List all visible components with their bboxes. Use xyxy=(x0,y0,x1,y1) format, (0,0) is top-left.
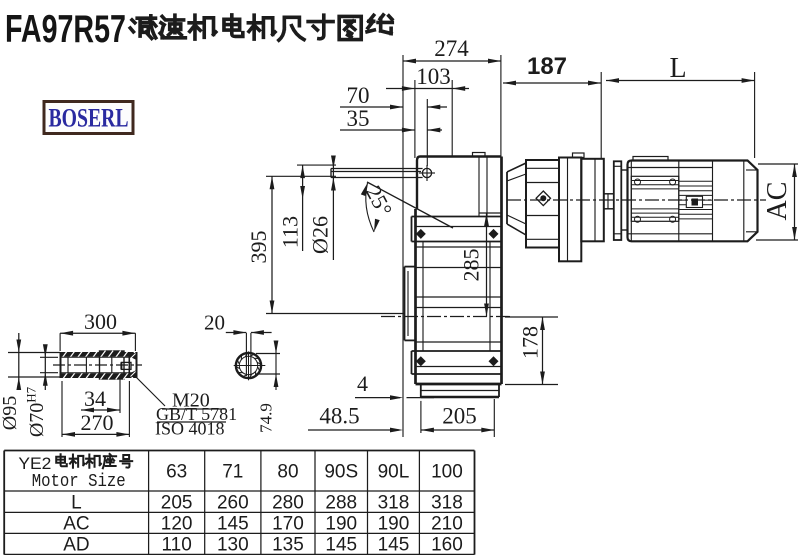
svg-text:274: 274 xyxy=(434,36,469,61)
svg-text:90S: 90S xyxy=(324,462,358,483)
svg-text:4: 4 xyxy=(357,371,368,396)
svg-text:BOSERL: BOSERL xyxy=(49,104,129,133)
svg-text:AC: AC xyxy=(762,182,793,221)
svg-text:Motor Size: Motor Size xyxy=(32,472,126,492)
svg-text:120: 120 xyxy=(161,514,193,535)
svg-text:205: 205 xyxy=(161,493,193,514)
svg-text:210: 210 xyxy=(431,514,463,535)
svg-text:FA97R57: FA97R57 xyxy=(5,8,126,52)
svg-text:Ø26: Ø26 xyxy=(308,216,333,254)
svg-text:205: 205 xyxy=(442,404,477,429)
svg-text:L: L xyxy=(669,53,686,84)
svg-text:130: 130 xyxy=(217,535,249,555)
svg-text:100: 100 xyxy=(431,462,463,483)
svg-text:178: 178 xyxy=(518,326,543,359)
svg-text:35: 35 xyxy=(347,106,370,131)
svg-text:135: 135 xyxy=(272,535,304,555)
svg-text:160: 160 xyxy=(431,535,463,555)
svg-text:318: 318 xyxy=(378,493,410,514)
svg-text:190: 190 xyxy=(325,514,357,535)
svg-text:63: 63 xyxy=(166,462,187,483)
svg-text:71: 71 xyxy=(222,462,243,483)
svg-text:285: 285 xyxy=(459,249,484,282)
svg-text:270: 270 xyxy=(81,410,114,435)
svg-text:103: 103 xyxy=(416,64,451,89)
svg-text:190: 190 xyxy=(378,514,410,535)
svg-text:288: 288 xyxy=(325,493,357,514)
svg-text:395: 395 xyxy=(246,231,271,264)
svg-text:145: 145 xyxy=(217,514,249,535)
svg-text:145: 145 xyxy=(378,535,410,555)
svg-text:AD: AD xyxy=(63,535,89,555)
svg-text:YE2: YE2 xyxy=(18,454,51,473)
svg-text:34: 34 xyxy=(84,386,106,411)
svg-text:113: 113 xyxy=(278,216,303,248)
svg-text:90L: 90L xyxy=(378,462,410,483)
svg-text:Ø95: Ø95 xyxy=(0,396,21,430)
svg-text:80: 80 xyxy=(277,462,298,483)
svg-text:74.9: 74.9 xyxy=(256,403,275,433)
svg-text:145: 145 xyxy=(325,535,357,555)
svg-text:70: 70 xyxy=(347,83,370,108)
svg-text:48.5: 48.5 xyxy=(319,404,359,429)
svg-text:110: 110 xyxy=(162,535,192,555)
svg-text:300: 300 xyxy=(84,309,117,334)
svg-text:318: 318 xyxy=(431,493,463,514)
svg-text:20: 20 xyxy=(204,311,225,335)
svg-text:170: 170 xyxy=(272,514,304,535)
svg-text:AC: AC xyxy=(63,514,89,535)
svg-text:260: 260 xyxy=(217,493,249,514)
svg-text:187: 187 xyxy=(527,53,567,80)
svg-text:ISO 4018: ISO 4018 xyxy=(155,419,225,439)
svg-text:L: L xyxy=(71,493,82,514)
svg-text:280: 280 xyxy=(272,493,304,514)
